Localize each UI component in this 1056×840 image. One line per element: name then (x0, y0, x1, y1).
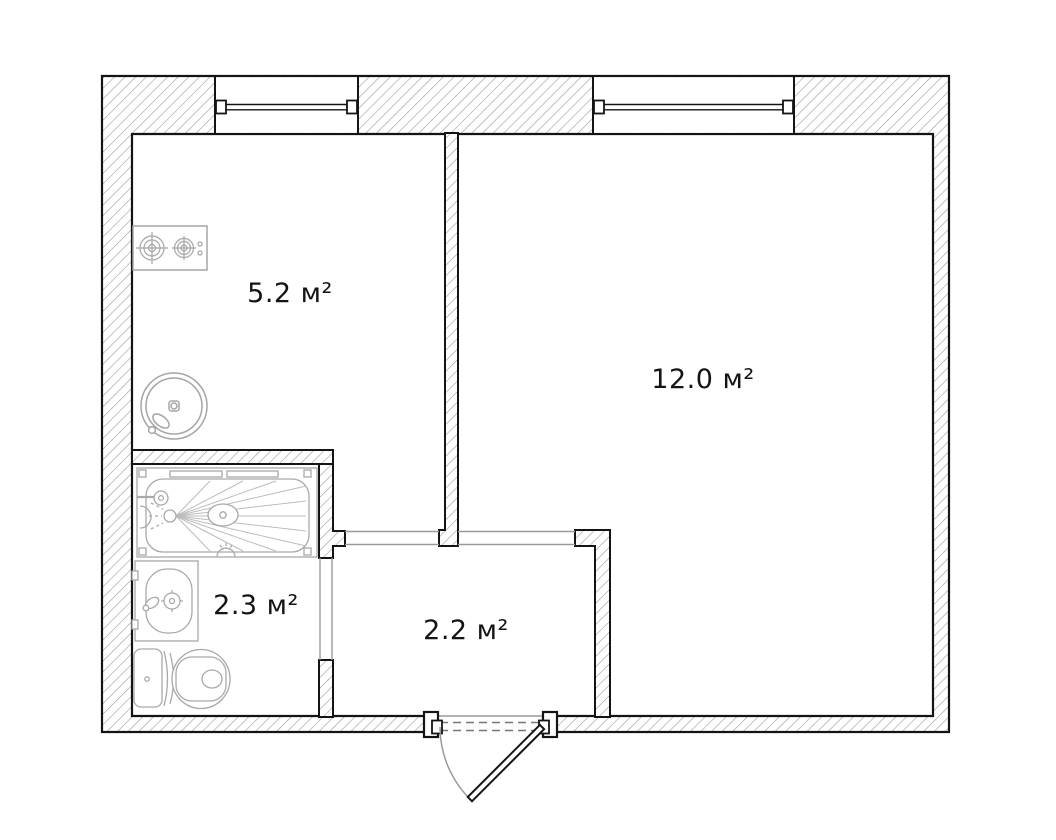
door-leaf (468, 725, 544, 801)
window-1 (215, 75, 358, 135)
washbasin-icon (132, 561, 198, 641)
wall-bathroom-top (132, 450, 333, 464)
bathroom-door-opening (320, 558, 332, 660)
entrance-door (424, 712, 557, 801)
kitchen-sink-icon (141, 373, 207, 439)
hallway-area-label: 2.2 м² (423, 615, 509, 646)
kitchen-area-label: 5.2 м² (247, 278, 333, 309)
bathroom-area-label: 2.3 м² (213, 590, 299, 621)
window-2 (593, 75, 794, 135)
toilet-icon (134, 649, 230, 709)
living-room-area-label: 12.0 м² (651, 364, 754, 395)
outer-wall (102, 76, 949, 732)
wall-kitchen-room-divider (439, 133, 458, 546)
stove-icon (133, 226, 207, 270)
door-swing-arc (440, 727, 470, 799)
kitchen-hallway-passage (345, 532, 439, 545)
wall-bathroom-right-upper (319, 464, 345, 558)
wall-hallway-right (575, 530, 610, 717)
bathtub-icon (137, 468, 317, 557)
room-hallway-passage (458, 532, 575, 545)
wall-bathroom-right-lower (319, 660, 333, 717)
floor-plan: 5.2 м² 12.0 м² 2.3 м² 2.2 м² (0, 0, 1056, 840)
